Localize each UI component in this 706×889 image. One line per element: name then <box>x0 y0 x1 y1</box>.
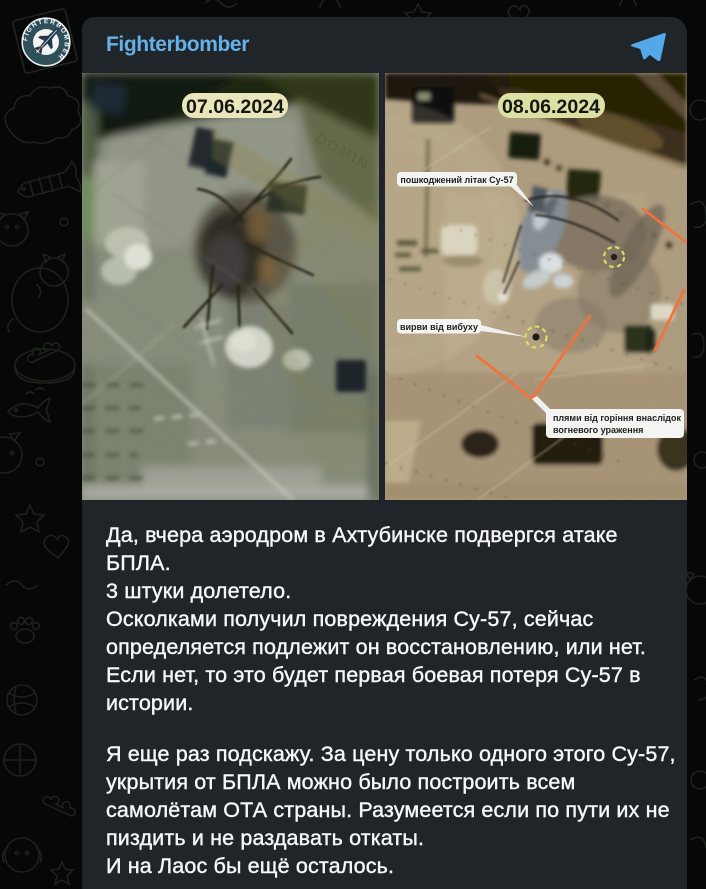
svg-text:вирви від вибуху: вирви від вибуху <box>400 322 478 332</box>
svg-text:вогневого ураження: вогневого ураження <box>553 425 643 435</box>
svg-text:07.06.2024: 07.06.2024 <box>186 96 284 118</box>
svg-text:пошкоджений літак Су-57: пошкоджений літак Су-57 <box>400 175 513 185</box>
svg-text:плями від горіння внаслідок: плями від горіння внаслідок <box>553 413 681 423</box>
svg-text:08.06.2024: 08.06.2024 <box>502 96 600 118</box>
